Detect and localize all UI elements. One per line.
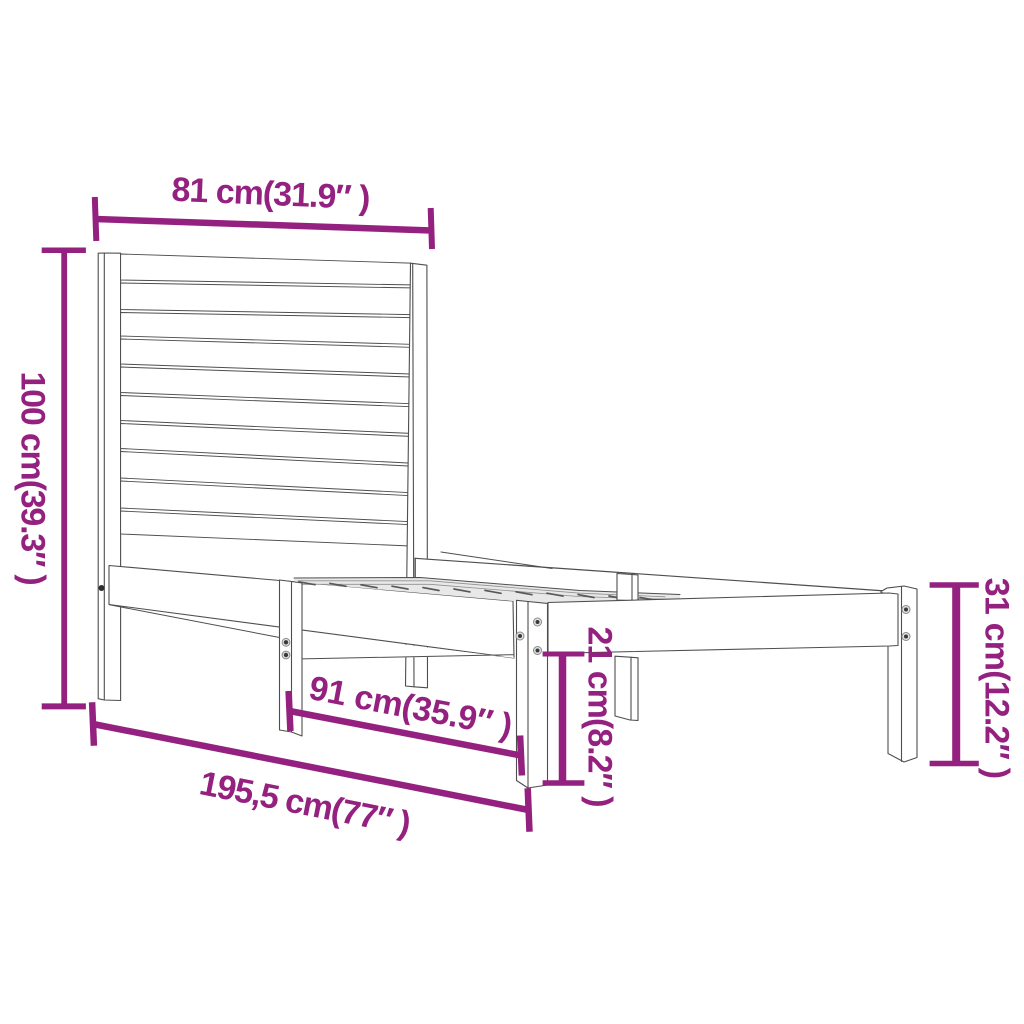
svg-text:100 cm(39.3″ ): 100 cm(39.3″ ) [14,371,52,584]
svg-text:31 cm(12.2″ ): 31 cm(12.2″ ) [978,578,1016,779]
svg-text:21 cm(8.2″ ): 21 cm(8.2″ ) [580,626,618,806]
